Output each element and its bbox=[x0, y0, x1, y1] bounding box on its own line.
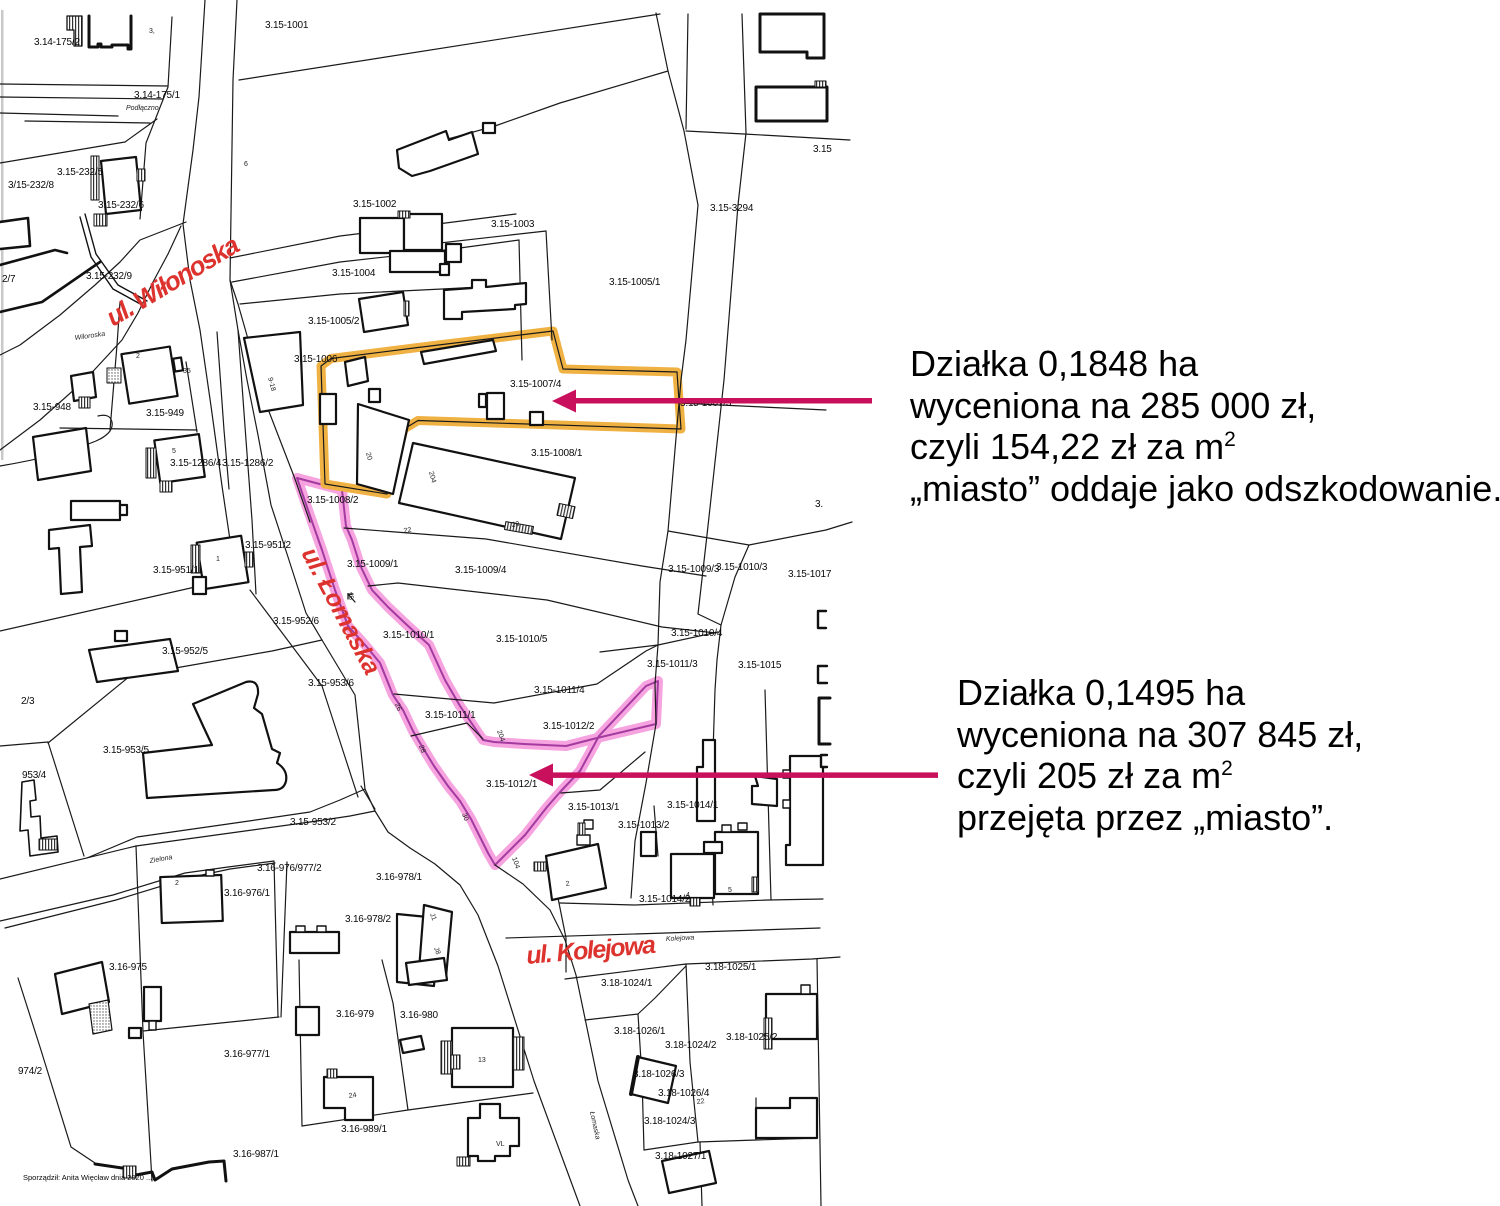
svg-text:3.15-1009/4: 3.15-1009/4 bbox=[455, 565, 507, 576]
svg-text:13: 13 bbox=[478, 1057, 486, 1064]
svg-text:1: 1 bbox=[216, 556, 220, 563]
svg-text:3.16-976/977/2: 3.16-976/977/2 bbox=[257, 863, 322, 874]
svg-text:3.16-975: 3.16-975 bbox=[109, 962, 148, 973]
svg-text:3.15-232/6: 3.15-232/6 bbox=[98, 200, 144, 211]
svg-text:3.15-1286/4: 3.15-1286/4 bbox=[170, 458, 222, 469]
svg-text:3.18-1026/1: 3.18-1026/1 bbox=[614, 1026, 666, 1037]
svg-text:3/15-232/8: 3/15-232/8 bbox=[8, 180, 54, 191]
svg-text:3.15-232/5: 3.15-232/5 bbox=[57, 167, 103, 178]
svg-text:3.15-1286/2: 3.15-1286/2 bbox=[222, 458, 274, 469]
svg-text:3.15-949: 3.15-949 bbox=[146, 408, 185, 419]
svg-text:3.18-1027/1: 3.18-1027/1 bbox=[655, 1151, 707, 1162]
svg-text:3.15-1012/2: 3.15-1012/2 bbox=[543, 721, 595, 732]
svg-text:104: 104 bbox=[510, 856, 521, 869]
svg-text:3.16-978/1: 3.16-978/1 bbox=[376, 872, 422, 883]
svg-text:3.15-1009/1: 3.15-1009/1 bbox=[347, 559, 399, 570]
svg-text:3.15-1001: 3.15-1001 bbox=[265, 20, 309, 31]
svg-text:6: 6 bbox=[244, 161, 248, 168]
svg-text:22: 22 bbox=[403, 527, 412, 535]
svg-text:3.15: 3.15 bbox=[813, 144, 832, 155]
svg-text:Wiloroska: Wiloroska bbox=[74, 331, 105, 342]
svg-text:22: 22 bbox=[696, 1098, 705, 1106]
svg-text:3.18-1026/3: 3.18-1026/3 bbox=[633, 1069, 685, 1080]
svg-text:3.18-1025/2: 3.18-1025/2 bbox=[726, 1032, 778, 1043]
svg-text:3.16-980: 3.16-980 bbox=[400, 1010, 439, 1021]
svg-text:953/4: 953/4 bbox=[22, 770, 47, 781]
svg-text:3.16-976/1: 3.16-976/1 bbox=[224, 888, 270, 899]
svg-text:3.15-1010/5: 3.15-1010/5 bbox=[496, 634, 548, 645]
svg-text:3.15-1017: 3.15-1017 bbox=[788, 569, 832, 580]
svg-text:24: 24 bbox=[348, 1092, 357, 1100]
svg-text:3.15-1011/1: 3.15-1011/1 bbox=[425, 710, 476, 721]
svg-text:3.16-979: 3.16-979 bbox=[336, 1009, 375, 1020]
svg-text:3.15-1011/3: 3.15-1011/3 bbox=[647, 659, 698, 670]
svg-text:3.14-175/2: 3.14-175/2 bbox=[34, 37, 80, 48]
svg-text:3.15-1015: 3.15-1015 bbox=[738, 660, 782, 671]
svg-text:3.15-1012/1: 3.15-1012/1 bbox=[486, 779, 538, 790]
svg-text:3.15-1008/1: 3.15-1008/1 bbox=[531, 448, 583, 459]
svg-text:3.: 3. bbox=[815, 499, 823, 510]
svg-text:3.15-953/5: 3.15-953/5 bbox=[103, 745, 149, 756]
svg-text:3.15-951/1: 3.15-951/1 bbox=[153, 565, 199, 576]
svg-text:3.15-951/2: 3.15-951/2 bbox=[245, 540, 291, 551]
svg-text:3.15-1004: 3.15-1004 bbox=[332, 268, 376, 279]
svg-text:Sporządził: Anita Więcław dnia: Sporządził: Anita Więcław dnia 2020 ....… bbox=[23, 1173, 159, 1182]
svg-text:5: 5 bbox=[728, 887, 732, 894]
svg-text:4: 4 bbox=[686, 892, 690, 899]
svg-text:Podłączno: Podłączno bbox=[126, 105, 159, 112]
svg-text:3,: 3, bbox=[149, 28, 155, 35]
svg-text:2/7: 2/7 bbox=[2, 274, 16, 285]
svg-text:3.15-1014/2: 3.15-1014/2 bbox=[639, 894, 691, 905]
svg-text:3.18-1024/1: 3.18-1024/1 bbox=[601, 978, 653, 989]
svg-text:Kolejowa: Kolejowa bbox=[666, 935, 695, 943]
svg-text:3.15-953/2: 3.15-953/2 bbox=[290, 817, 336, 828]
svg-text:5: 5 bbox=[172, 448, 176, 455]
svg-text:3.15-1013/2: 3.15-1013/2 bbox=[618, 820, 670, 831]
svg-text:2: 2 bbox=[136, 353, 140, 360]
svg-text:3.15-1010/1: 3.15-1010/1 bbox=[383, 630, 435, 641]
svg-text:3.16-978/2: 3.16-978/2 bbox=[345, 914, 391, 925]
svg-text:3.15-1010/3: 3.15-1010/3 bbox=[716, 562, 768, 573]
svg-text:3.15-952/5: 3.15-952/5 bbox=[162, 646, 208, 657]
svg-text:2/3: 2/3 bbox=[21, 696, 35, 707]
svg-text:3.15-948: 3.15-948 bbox=[33, 402, 72, 413]
svg-text:3.15-1003: 3.15-1003 bbox=[491, 219, 535, 230]
svg-text:3.15-1013/1: 3.15-1013/1 bbox=[568, 802, 620, 813]
svg-text:3.16-987/1: 3.16-987/1 bbox=[233, 1149, 279, 1160]
svg-text:3.15-1005/2: 3.15-1005/2 bbox=[308, 316, 360, 327]
svg-text:3.16-977/1: 3.16-977/1 bbox=[224, 1049, 270, 1060]
svg-text:3.16-989/1: 3.16-989/1 bbox=[341, 1124, 387, 1135]
svg-text:3.15-953/6: 3.15-953/6 bbox=[308, 678, 354, 689]
svg-text:3.15-952/6: 3.15-952/6 bbox=[273, 616, 319, 627]
svg-text:3.14-175/1: 3.14-175/1 bbox=[134, 90, 180, 101]
svg-text:3.15-3294: 3.15-3294 bbox=[710, 203, 754, 214]
svg-text:35: 35 bbox=[183, 368, 191, 375]
svg-text:3.15-1014/1: 3.15-1014/1 bbox=[667, 800, 719, 811]
svg-text:3.15-1010/4: 3.15-1010/4 bbox=[671, 628, 723, 639]
svg-text:3.18-1024/3: 3.18-1024/3 bbox=[644, 1116, 696, 1127]
svg-text:3.15-1002: 3.15-1002 bbox=[353, 199, 397, 210]
svg-text:3.15-1009/3: 3.15-1009/3 bbox=[668, 564, 720, 575]
svg-text:3.15-1005/1: 3.15-1005/1 bbox=[609, 277, 661, 288]
svg-text:3.15-1011/4: 3.15-1011/4 bbox=[534, 685, 585, 696]
svg-text:3.15-1008/2: 3.15-1008/2 bbox=[307, 495, 359, 506]
svg-text:3.18-1024/2: 3.18-1024/2 bbox=[665, 1040, 717, 1051]
svg-text:974/2: 974/2 bbox=[18, 1066, 43, 1077]
svg-text:3.18-1025/1: 3.18-1025/1 bbox=[705, 962, 757, 973]
svg-text:Łomaska: Łomaska bbox=[588, 1111, 601, 1140]
svg-text:VL: VL bbox=[496, 1141, 505, 1148]
svg-text:Zielona: Zielona bbox=[148, 854, 173, 865]
svg-text:2: 2 bbox=[175, 880, 179, 887]
svg-text:3.15-1006: 3.15-1006 bbox=[294, 354, 338, 365]
svg-text:3.15-1007/4: 3.15-1007/4 bbox=[510, 379, 562, 390]
svg-text:3.15-232/9: 3.15-232/9 bbox=[86, 271, 132, 282]
svg-text:20: 20 bbox=[511, 521, 520, 529]
